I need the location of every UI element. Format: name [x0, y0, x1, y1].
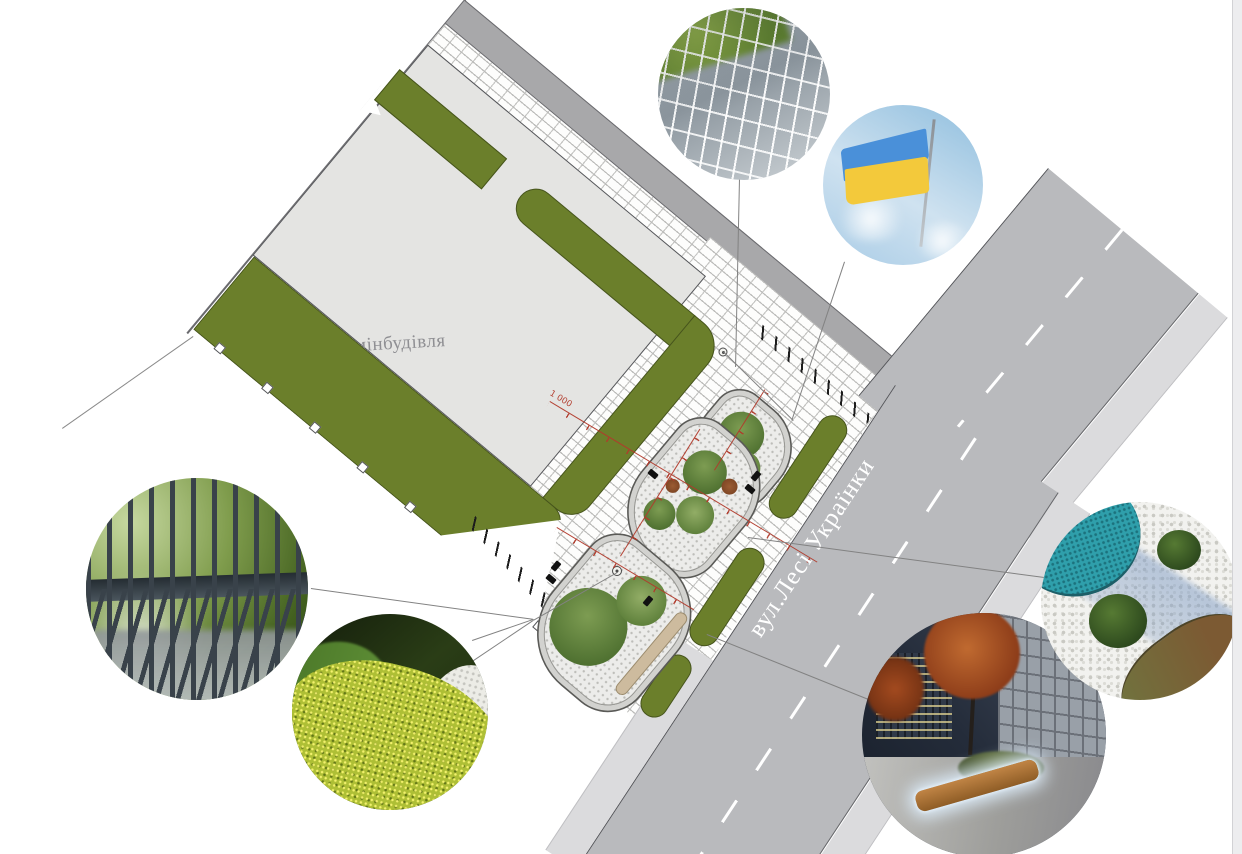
pebble-garden-photo [1041, 502, 1239, 700]
viewer-page-edge [1232, 0, 1242, 854]
cloud [831, 197, 911, 241]
shrub-symbol [669, 489, 723, 543]
topiary-bush [1089, 594, 1147, 648]
metal-fence-photo [86, 478, 308, 700]
topiary-bush [1157, 530, 1201, 570]
lot-boundary-line [62, 336, 194, 429]
paving-photo-shade [658, 8, 830, 180]
leader-fence [311, 588, 533, 620]
paving-pavers-photo [658, 8, 830, 180]
night-tree-foliage [866, 657, 924, 721]
yellow-shrubs-photo [292, 614, 488, 810]
site-plan-canvas: Адмінбудівля [0, 0, 1242, 854]
leader-shrub-a [472, 619, 534, 641]
fence-bars-curved [86, 589, 308, 700]
ukraine-flag-photo [823, 105, 983, 265]
